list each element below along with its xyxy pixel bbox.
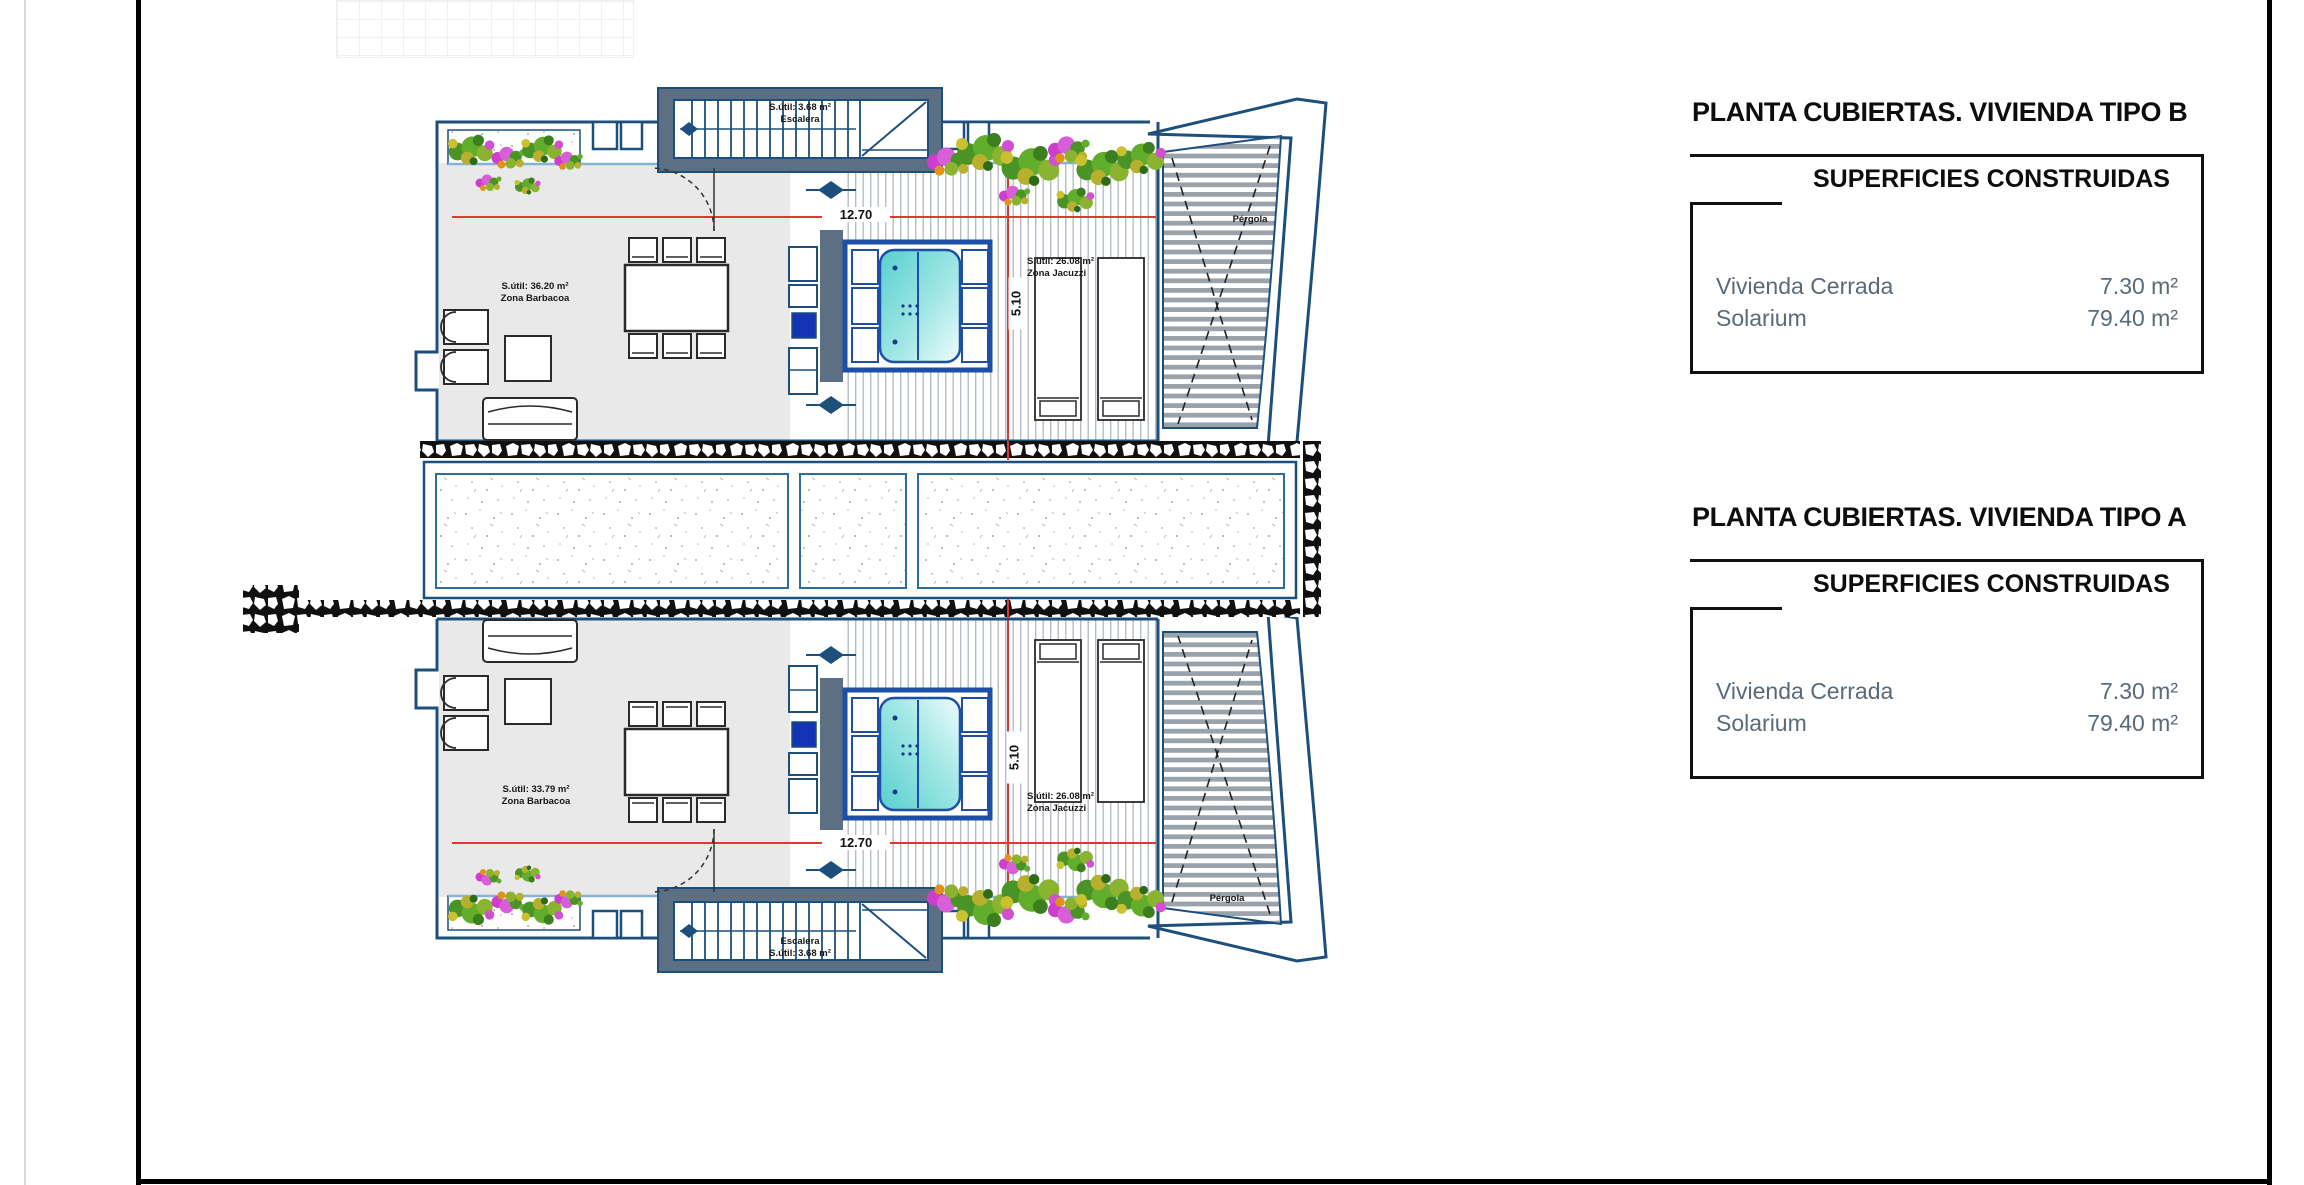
panel-subtitle: SUPERFICIES CONSTRUIDAS (1780, 165, 2203, 194)
dim-width-bottom: 12.70 (822, 835, 890, 850)
barbecue-area-text: S.útil: 36.20 m² (460, 281, 610, 293)
surface-value: 79.40 m² (2087, 305, 2178, 332)
surface-row: Vivienda Cerrada 7.30 m² (1716, 273, 2178, 300)
surface-label: Solarium (1716, 305, 1807, 332)
dim-width-top: 12.70 (822, 207, 890, 222)
barbecue-name-text: Zona Barbacoa (461, 796, 611, 808)
panel-title: PLANTA CUBIERTAS. VIVIENDA TIPO A (1692, 502, 2206, 533)
jacuzzi-area-text: S.útil: 26.08 m² (1027, 791, 1157, 803)
panel-border-bottom (1690, 371, 2203, 374)
label-jacuzzi-bottom: S.útil: 26.08 m² Zona Jacuzzi (1027, 791, 1157, 815)
drawing-sheet: S.útil: 3.68 m² Escalera S.útil: 36.20 m… (0, 0, 2304, 1185)
panel-border-right (2201, 154, 2204, 374)
panel-tipo-b: PLANTA CUBIERTAS. VIVIENDA TIPO B SUPERF… (1690, 95, 2206, 385)
surface-row: Solarium 79.40 m² (1716, 305, 2178, 332)
surface-row: Solarium 79.40 m² (1716, 710, 2178, 737)
label-stair-top: S.útil: 3.68 m² Escalera (700, 102, 900, 126)
surface-row: Vivienda Cerrada 7.30 m² (1716, 678, 2178, 705)
panel-subtitle: SUPERFICIES CONSTRUIDAS (1780, 570, 2203, 599)
panel-rule-short (1690, 202, 1782, 205)
surface-value: 7.30 m² (2100, 678, 2178, 705)
panel-tipo-a: PLANTA CUBIERTAS. VIVIENDA TIPO A SUPERF… (1690, 500, 2206, 790)
jacuzzi-name-text: Zona Jacuzzi (1027, 268, 1157, 280)
label-barbecue-top: S.útil: 36.20 m² Zona Barbacoa (460, 281, 610, 305)
surface-label: Vivienda Cerrada (1716, 678, 1893, 705)
stair-name-text: Escalera (700, 936, 900, 948)
label-pergola-bottom: Pérgola (1177, 893, 1277, 905)
label-jacuzzi-top: S.útil: 26.08 m² Zona Jacuzzi (1027, 256, 1157, 280)
dim-height-bottom: 5.10 (1007, 732, 1022, 784)
panel-rule (1690, 559, 2204, 562)
unit-top (416, 88, 1326, 447)
terrace-band (243, 441, 1321, 633)
surface-value: 79.40 m² (2087, 710, 2178, 737)
barbecue-name-text: Zona Barbacoa (460, 293, 610, 305)
panel-border-left (1690, 607, 1693, 779)
panel-rule (1690, 154, 2204, 157)
stair-area-text: S.útil: 3.68 m² (700, 948, 900, 960)
panel-border-right (2201, 559, 2204, 779)
surface-label: Vivienda Cerrada (1716, 273, 1893, 300)
panel-border-bottom (1690, 776, 2203, 779)
barbecue-area-text: S.útil: 33.79 m² (461, 784, 611, 796)
dim-height-top: 5.10 (1009, 278, 1024, 330)
panel-rule-short (1690, 607, 1782, 610)
stair-name-text: Escalera (700, 114, 900, 126)
panel-title: PLANTA CUBIERTAS. VIVIENDA TIPO B (1692, 97, 2206, 128)
label-stair-bottom: Escalera S.útil: 3.68 m² (700, 936, 900, 960)
surface-label: Solarium (1716, 710, 1807, 737)
jacuzzi-name-text: Zona Jacuzzi (1027, 803, 1157, 815)
label-pergola-top: Pérgola (1200, 214, 1300, 226)
panel-border-left (1690, 202, 1693, 374)
label-barbecue-bottom: S.útil: 33.79 m² Zona Barbacoa (461, 784, 611, 808)
stair-area-text: S.útil: 3.68 m² (700, 102, 900, 114)
jacuzzi-area-text: S.útil: 26.08 m² (1027, 256, 1157, 268)
surface-value: 7.30 m² (2100, 273, 2178, 300)
